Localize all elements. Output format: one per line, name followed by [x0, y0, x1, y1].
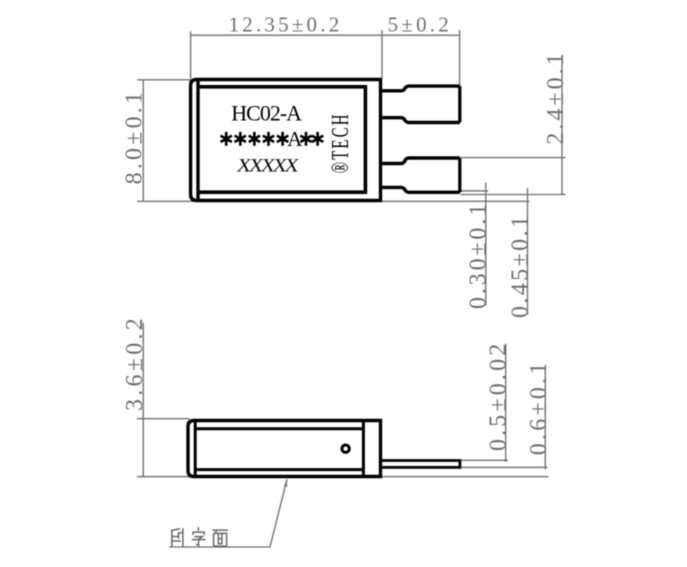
svg-text:HC02-A: HC02-A	[231, 100, 302, 125]
svg-text:A: A	[287, 127, 303, 151]
svg-text:12.35±0.2: 12.35±0.2	[229, 13, 343, 37]
svg-text:XXXXX: XXXXX	[236, 156, 301, 177]
svg-text:0.30±0.1: 0.30±0.1	[466, 201, 492, 309]
svg-text:2.4±0.1: 2.4±0.1	[543, 50, 569, 144]
svg-text:0.5±0.02: 0.5±0.02	[486, 341, 512, 451]
svg-text:8.0±0.1: 8.0±0.1	[121, 89, 147, 185]
svg-text:3.6±0.2: 3.6±0.2	[122, 315, 148, 411]
svg-text:0.6±0.1: 0.6±0.1	[526, 359, 552, 455]
svg-text:5±0.2: 5±0.2	[388, 13, 452, 37]
svg-text:®TECH: ®TECH	[328, 112, 354, 173]
svg-text:0.45±0.1: 0.45±0.1	[508, 214, 534, 318]
